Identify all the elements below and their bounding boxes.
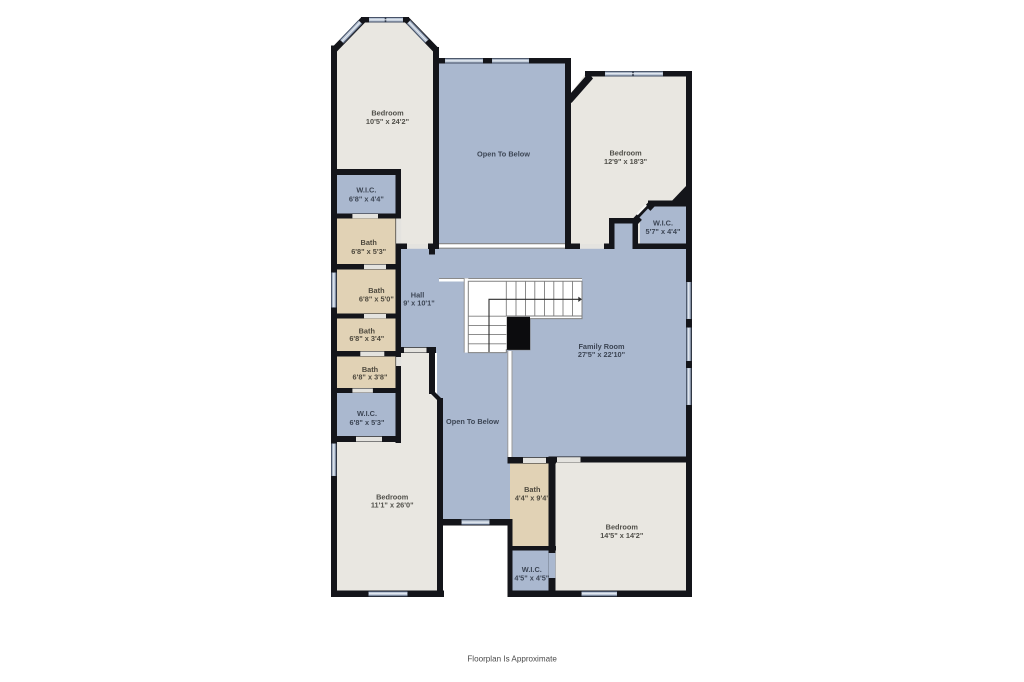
svg-text:14'5" x 14'2": 14'5" x 14'2" (600, 531, 643, 540)
svg-text:Open To Below: Open To Below (446, 417, 499, 426)
svg-text:27'5" x 22'10": 27'5" x 22'10" (578, 350, 625, 359)
svg-text:W.I.C.: W.I.C. (357, 409, 377, 418)
svg-text:10'5" x 24'2": 10'5" x 24'2" (366, 117, 409, 126)
svg-text:Open To Below: Open To Below (477, 150, 530, 159)
svg-text:Floorplan Is Approximate: Floorplan Is Approximate (467, 655, 557, 664)
svg-text:4'5" x 4'5": 4'5" x 4'5" (514, 573, 549, 582)
svg-text:W.I.C.: W.I.C. (356, 186, 376, 195)
svg-text:12'9" x 18'3": 12'9" x 18'3" (604, 157, 647, 166)
svg-text:6'8" x 5'0": 6'8" x 5'0" (359, 294, 394, 303)
svg-text:6'8" x 5'3": 6'8" x 5'3" (350, 418, 385, 427)
svg-text:11'1" x 26'0": 11'1" x 26'0" (371, 501, 414, 510)
svg-text:6'8" x 3'4": 6'8" x 3'4" (349, 334, 384, 343)
svg-text:9' x 10'1": 9' x 10'1" (403, 298, 434, 307)
svg-text:5'7" x 4'4": 5'7" x 4'4" (646, 227, 681, 236)
svg-text:4'4" x 9'4": 4'4" x 9'4" (515, 493, 550, 502)
svg-text:6'8" x 4'4": 6'8" x 4'4" (349, 195, 384, 204)
svg-text:6'8" x 5'3": 6'8" x 5'3" (351, 247, 386, 256)
svg-text:6'8" x 3'8": 6'8" x 3'8" (353, 373, 388, 382)
